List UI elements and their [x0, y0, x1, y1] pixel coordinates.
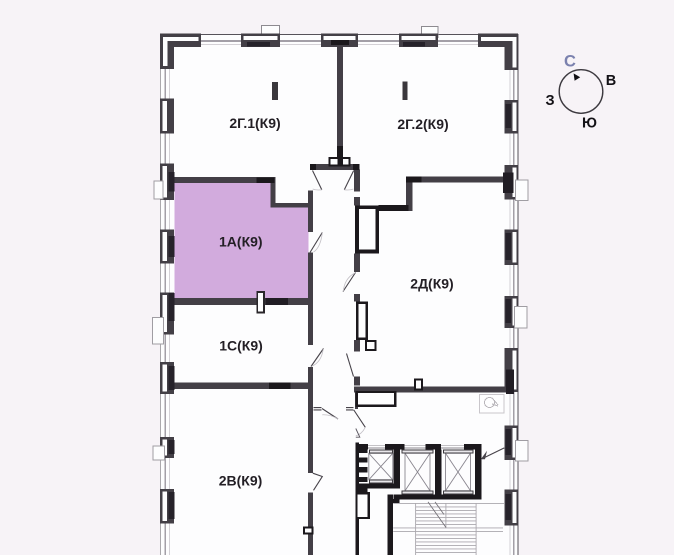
svg-text:С: С	[564, 53, 576, 71]
svg-text:2Д(К9): 2Д(К9)	[410, 276, 453, 292]
svg-text:1С(К9): 1С(К9)	[219, 338, 263, 354]
svg-text:З: З	[545, 93, 554, 109]
svg-text:Ю: Ю	[582, 116, 597, 132]
svg-text:2Г.1(К9): 2Г.1(К9)	[229, 115, 280, 131]
svg-text:В: В	[606, 73, 616, 89]
svg-text:2Г.2(К9): 2Г.2(К9)	[397, 116, 448, 132]
svg-text:1А(К9): 1А(К9)	[219, 234, 263, 250]
svg-text:2В(К9): 2В(К9)	[219, 473, 263, 489]
